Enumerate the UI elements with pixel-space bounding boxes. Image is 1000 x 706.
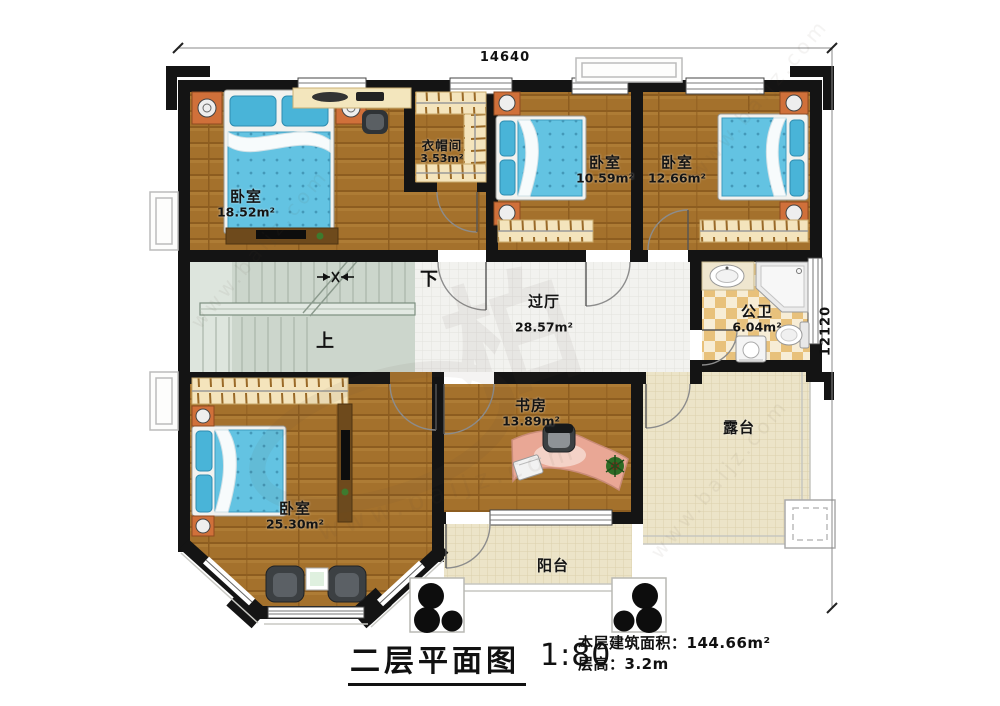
wardrobe [498, 220, 593, 242]
wardrobe [700, 220, 808, 242]
window [490, 510, 612, 525]
room-label-bathroom: 公卫 6.04m² [732, 304, 781, 335]
dimension-top-label: 14640 [480, 50, 530, 65]
dimension-right-label: 12120 [819, 306, 834, 356]
room-label-study: 书房 13.89m² [502, 398, 560, 429]
floor-plan-drawing: 柏 www.baijz.com www.baijz.com www.baijz.… [0, 0, 1000, 706]
balcony-floor [444, 524, 632, 584]
title-block: 二层平面图 1:80 [348, 636, 611, 686]
room-label-balcony: 阳台 [537, 558, 569, 575]
room-label-hallway: 过厅 28.57m² [515, 294, 573, 335]
room-label-bedroom-top-left: 卧室 18.52m² [217, 189, 275, 220]
terrace-column-footing [785, 500, 835, 548]
building-area-line: 本层建筑面积：144.66m² [578, 633, 771, 654]
balcony-columns [410, 578, 666, 633]
plan-info: 本层建筑面积：144.66m² 层高：3.2m [578, 633, 771, 675]
floor-plan-page: 柏 www.baijz.com www.baijz.com www.baijz.… [0, 0, 1000, 706]
stairs-down-label: 下 [420, 265, 438, 291]
room-label-bedroom-bottom-left: 卧室 25.30m² [266, 501, 324, 532]
page-title: 二层平面图 [348, 636, 526, 686]
room-label-bedroom-top-right: 卧室 12.66m² [648, 155, 706, 186]
floor-height-line: 层高：3.2m [578, 654, 771, 675]
room-label-cloakroom: 衣帽间 3.53m² [420, 139, 463, 165]
room-label-terrace: 露台 [723, 420, 755, 437]
stairs-up-label: 上 [316, 327, 334, 353]
double-bed [496, 116, 586, 200]
room-label-bedroom-top-middle: 卧室 10.59m² [576, 155, 634, 186]
